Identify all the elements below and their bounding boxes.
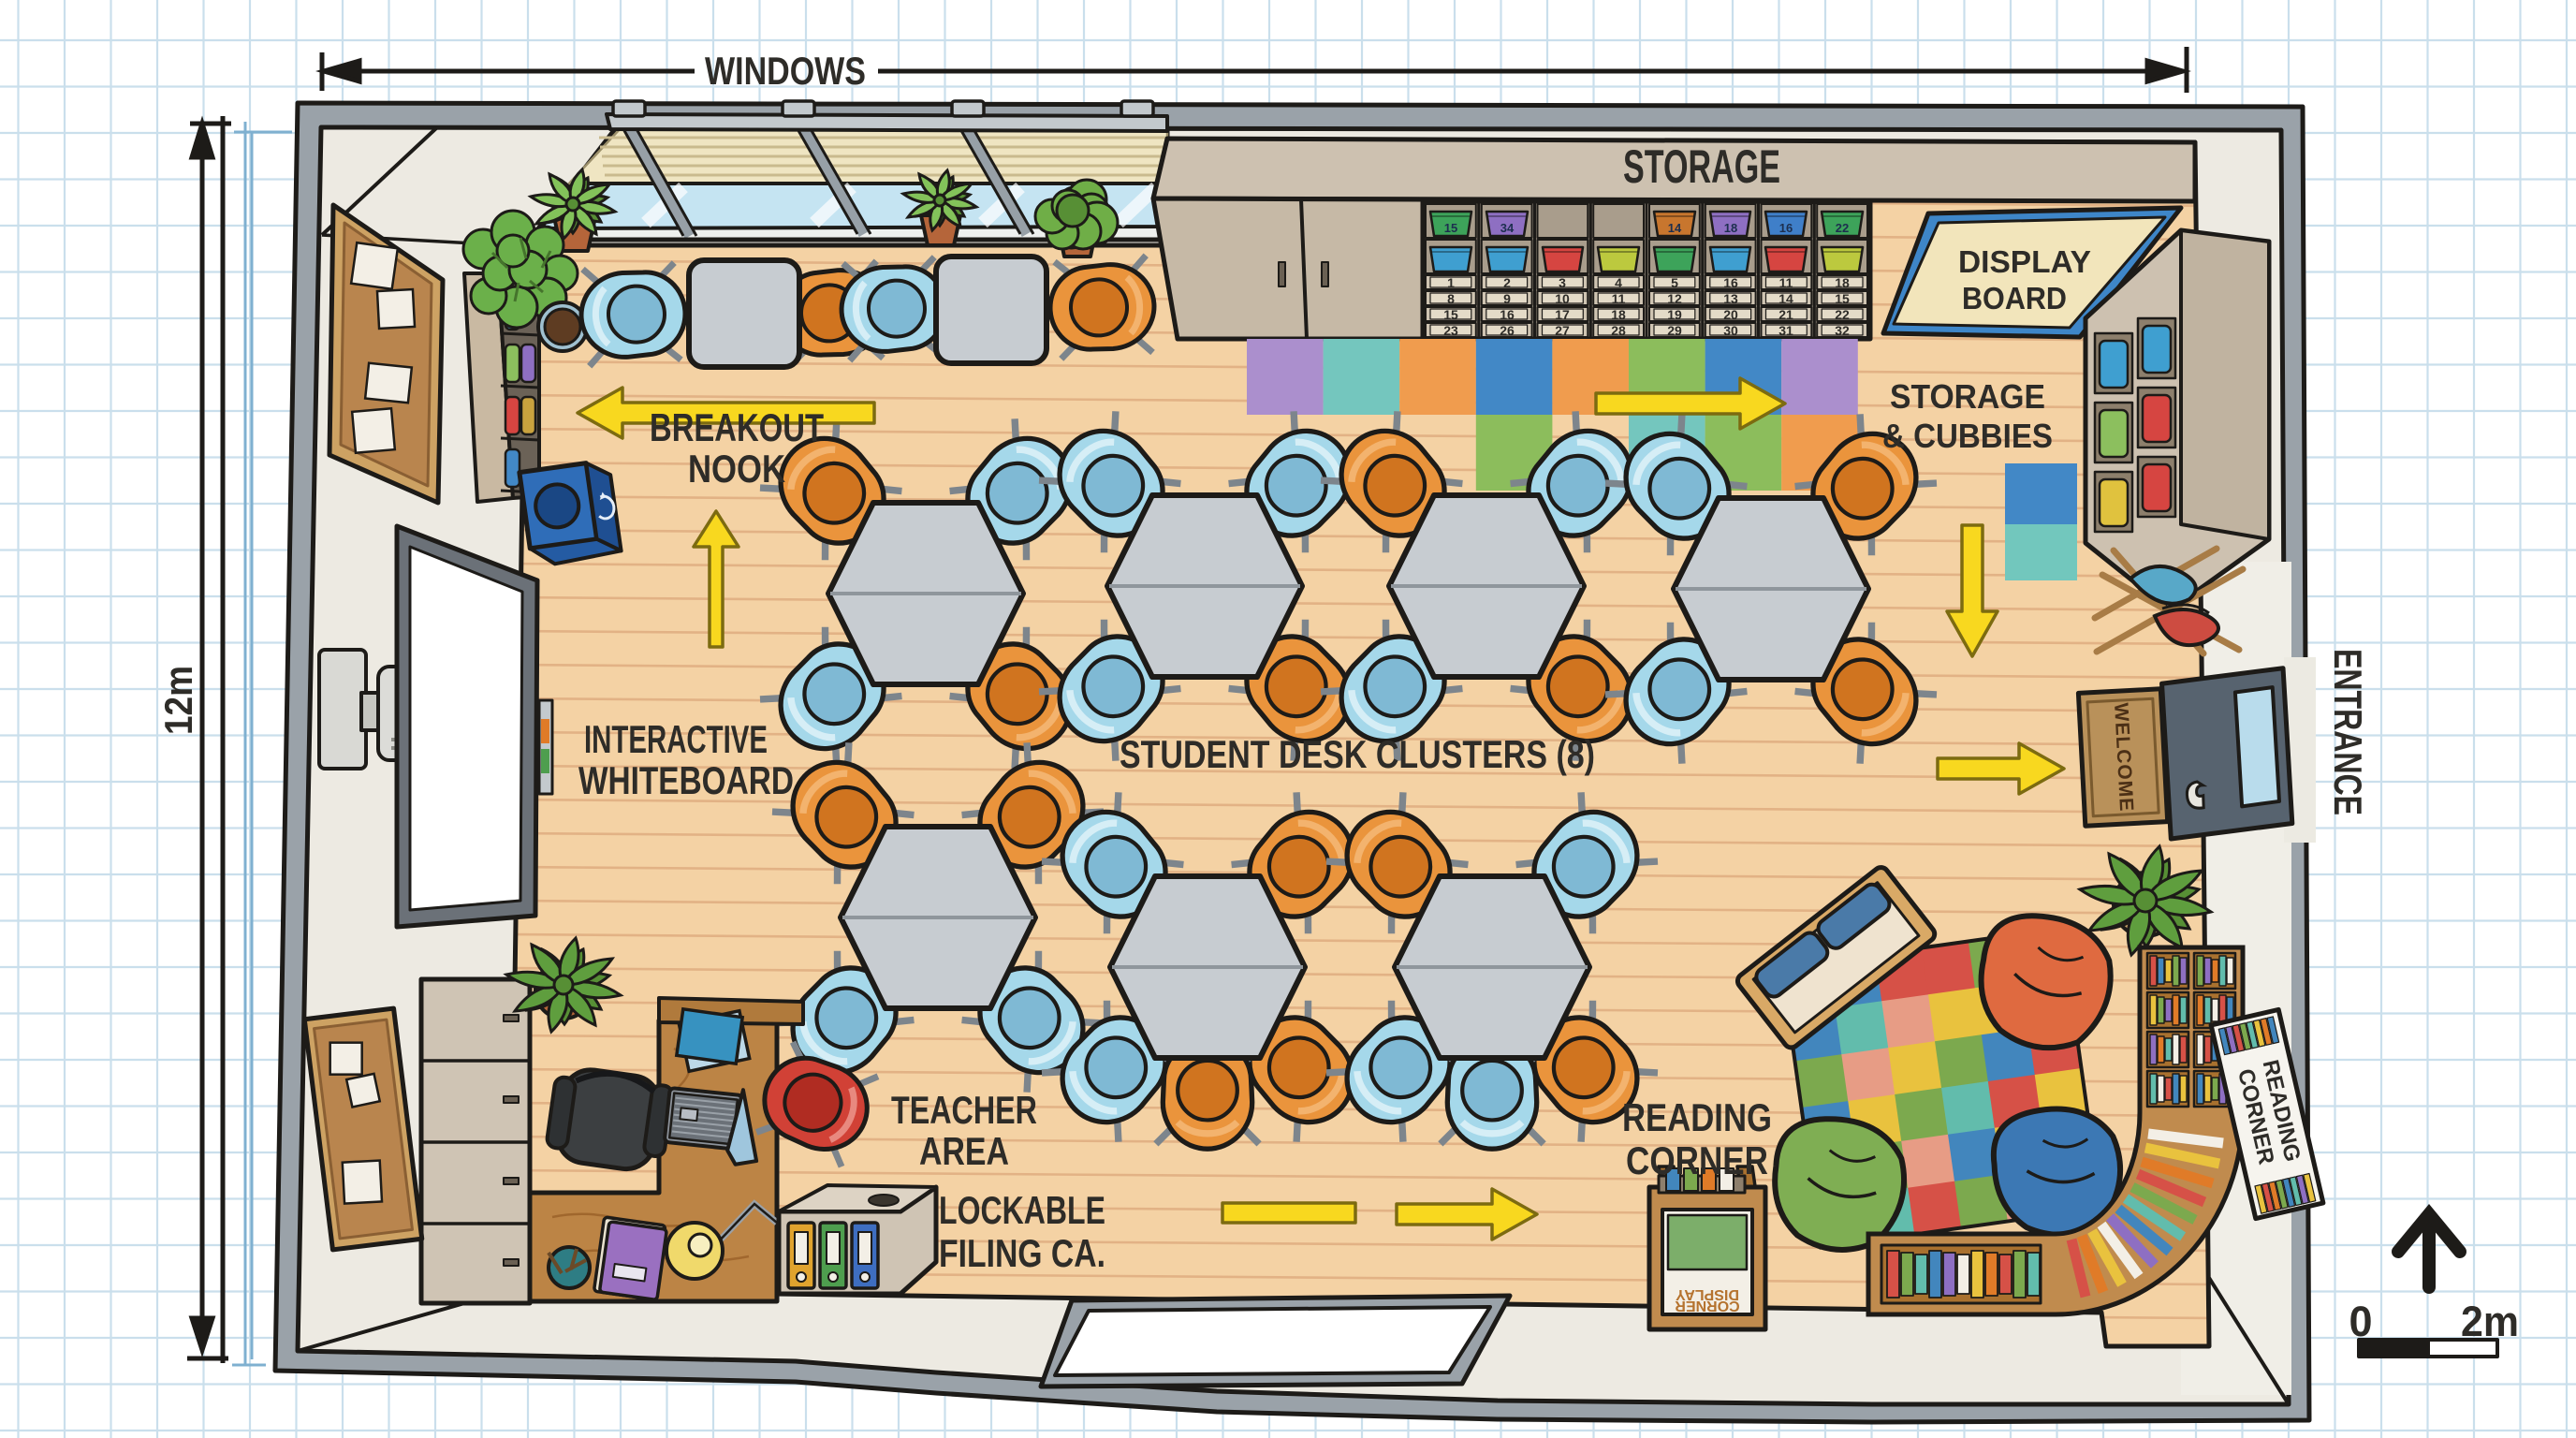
svg-text:15: 15 (1443, 307, 1458, 322)
svg-text:21: 21 (1778, 307, 1793, 322)
svg-text:5: 5 (1671, 275, 1678, 290)
svg-text:ENTRANCE: ENTRANCE (2326, 649, 2370, 815)
svg-text:27: 27 (1555, 323, 1570, 338)
svg-text:10: 10 (1555, 291, 1570, 306)
svg-text:19: 19 (1667, 307, 1682, 322)
svg-text:CORNER: CORNER (1675, 1298, 1740, 1313)
svg-text:22: 22 (1836, 221, 1849, 235)
svg-text:0: 0 (2349, 1298, 2372, 1345)
svg-text:16: 16 (1723, 275, 1738, 290)
svg-text:18: 18 (1611, 307, 1626, 322)
svg-text:30: 30 (1723, 323, 1738, 338)
svg-text:31: 31 (1778, 323, 1793, 338)
svg-text:18: 18 (1835, 275, 1850, 290)
svg-text:15: 15 (1835, 291, 1850, 306)
svg-text:23: 23 (1443, 323, 1458, 338)
svg-text:INTERACTIVE: INTERACTIVE (584, 717, 768, 761)
svg-text:CORNER: CORNER (1626, 1138, 1768, 1182)
svg-text:13: 13 (1723, 291, 1738, 306)
svg-text:BOARD: BOARD (1962, 281, 2067, 315)
svg-text:26: 26 (1500, 323, 1515, 338)
svg-text:11: 11 (1779, 275, 1793, 290)
svg-text:16: 16 (1779, 221, 1793, 235)
svg-text:17: 17 (1555, 307, 1570, 322)
svg-text:WHITEBOARD: WHITEBOARD (578, 758, 794, 802)
svg-text:DISPLAY: DISPLAY (1958, 244, 2091, 279)
svg-text:TEACHER: TEACHER (891, 1088, 1037, 1132)
svg-text:WINDOWS: WINDOWS (705, 49, 866, 93)
svg-text:STORAGE: STORAGE (1890, 377, 2045, 416)
svg-text:LOCKABLE: LOCKABLE (939, 1188, 1105, 1232)
svg-text:29: 29 (1667, 323, 1682, 338)
svg-text:14: 14 (1668, 221, 1682, 235)
svg-text:28: 28 (1611, 323, 1626, 338)
svg-text:STUDENT DESK CLUSTERS (8): STUDENT DESK CLUSTERS (8) (1120, 732, 1595, 776)
svg-text:& CUBBIES: & CUBBIES (1882, 417, 2053, 455)
svg-text:FILING CA.: FILING CA. (939, 1231, 1105, 1275)
svg-text:BREAKOUT: BREAKOUT (650, 405, 824, 449)
svg-text:32: 32 (1835, 323, 1850, 338)
svg-text:11: 11 (1612, 291, 1626, 306)
svg-text:9: 9 (1503, 291, 1511, 306)
svg-text:NOOK: NOOK (688, 447, 785, 491)
svg-text:16: 16 (1500, 307, 1515, 322)
svg-text:2: 2 (1503, 275, 1511, 290)
svg-text:1: 1 (1447, 275, 1455, 290)
svg-text:14: 14 (1778, 291, 1793, 306)
svg-text:8: 8 (1447, 291, 1455, 306)
svg-text:2m: 2m (2461, 1298, 2519, 1345)
svg-text:4: 4 (1615, 275, 1622, 290)
svg-text:AREA: AREA (919, 1129, 1009, 1173)
svg-text:3: 3 (1559, 275, 1566, 290)
svg-text:34: 34 (1500, 221, 1515, 235)
svg-text:20: 20 (1723, 307, 1738, 322)
svg-text:15: 15 (1444, 221, 1457, 235)
svg-text:STORAGE: STORAGE (1623, 140, 1780, 193)
svg-text:12m: 12m (156, 666, 200, 735)
svg-text:READING: READING (1622, 1095, 1772, 1139)
svg-text:18: 18 (1724, 221, 1737, 235)
svg-text:22: 22 (1835, 307, 1850, 322)
svg-text:12: 12 (1667, 291, 1682, 306)
